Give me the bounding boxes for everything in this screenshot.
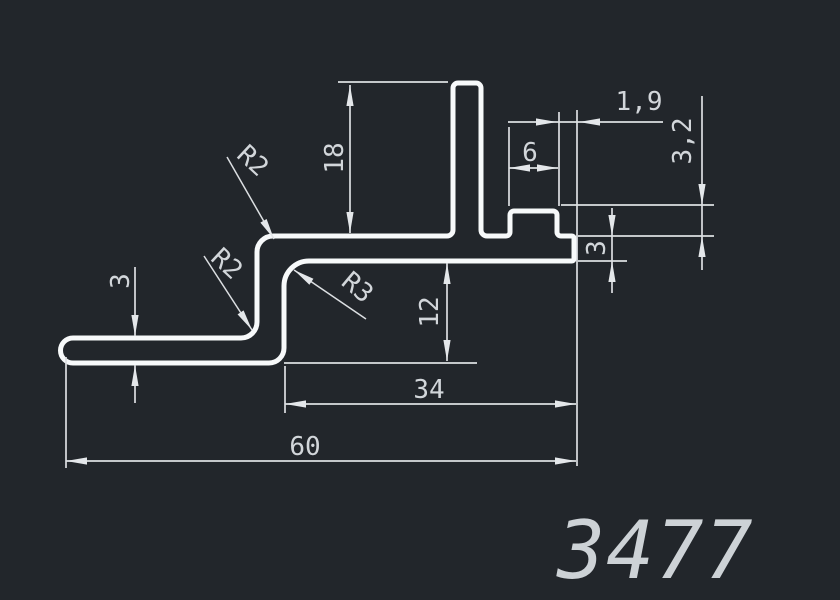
dim-label-web-depth: 12 [415, 296, 445, 327]
dim-label-bump-width: 6 [522, 138, 538, 168]
arrowhead [131, 365, 138, 386]
cad-drawing-svg: 18 12 3 6 1,9 3,2 [0, 0, 840, 600]
dim-lip-thickness: 3 [578, 208, 627, 293]
arrowhead [579, 118, 600, 125]
radius-top-outer: R2 [227, 140, 277, 241]
dim-bump-width: 6 [509, 127, 558, 206]
dim-label-flange-length: 34 [413, 375, 444, 405]
arrowhead [536, 118, 557, 125]
arrowhead [346, 212, 353, 233]
dim-label-lip-thickness: 3 [582, 240, 612, 256]
arrowhead [238, 310, 255, 332]
dim-label-bump-height: 3,2 [668, 118, 698, 165]
arrowhead [292, 267, 313, 285]
arrowhead [608, 215, 615, 236]
arrowhead [608, 261, 615, 282]
arrowhead [443, 340, 450, 361]
cad-drawing-canvas: 18 12 3 6 1,9 3,2 [0, 0, 840, 600]
radius-web-inner: R3 [292, 266, 379, 319]
part-number-label: 3477 [556, 504, 754, 597]
arrowhead [346, 85, 353, 106]
arrowhead [555, 457, 576, 464]
arrowhead [698, 236, 705, 257]
dim-leg-thickness: 3 [106, 267, 139, 403]
dim-label-lip-overhang: 1,9 [616, 87, 663, 117]
arrowhead [537, 164, 558, 171]
dim-overall-length: 60 [66, 357, 576, 468]
radius-bottom-inner: R2 [204, 243, 255, 332]
dim-label-overall-length: 60 [289, 432, 320, 462]
radius-label-bottom-inner: R2 [205, 243, 248, 286]
arrowhead [443, 263, 450, 284]
arrowhead [131, 315, 138, 336]
arrowhead [555, 400, 576, 407]
arrowhead [285, 400, 306, 407]
dim-web-depth: 12 [284, 263, 477, 363]
dim-label-fin-height: 18 [320, 142, 350, 173]
dim-fin-height: 18 [320, 82, 448, 233]
dim-flange-length: 34 [285, 366, 576, 413]
arrowhead [66, 457, 87, 464]
dim-label-leg-thickness: 3 [106, 273, 136, 289]
arrowhead [698, 184, 705, 205]
